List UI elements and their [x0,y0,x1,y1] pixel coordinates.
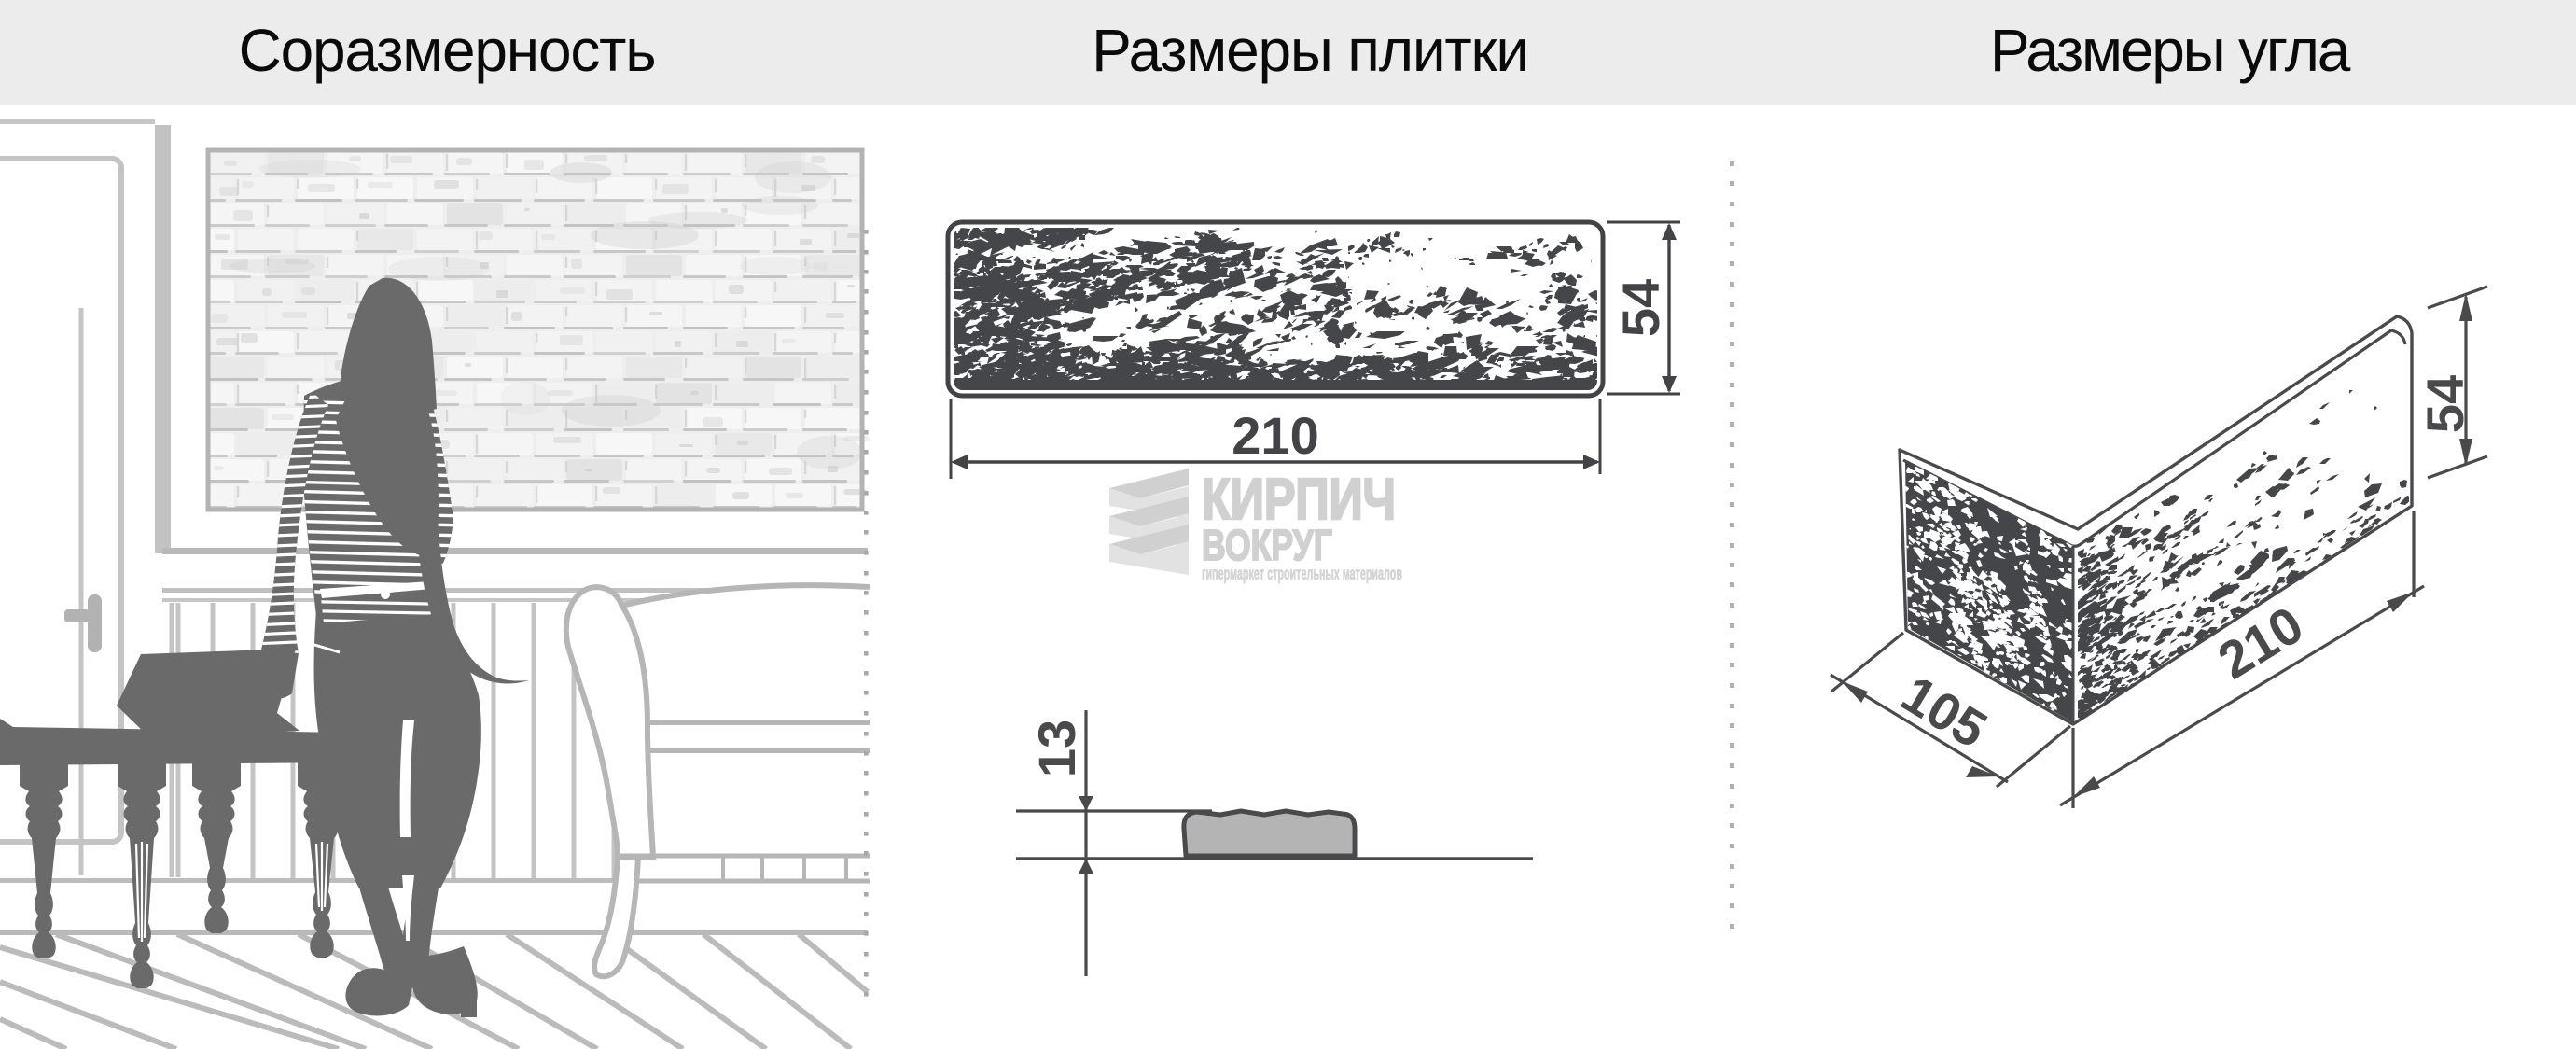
svg-text:ВОКРУГ: ВОКРУГ [1202,521,1332,569]
svg-text:13: 13 [1027,720,1086,777]
svg-text:гипермаркет строительных матер: гипермаркет строительных материалов [1202,565,1402,584]
svg-text:54: 54 [2416,375,2474,433]
svg-text:Соразмерность: Соразмерность [239,17,656,84]
svg-text:Размеры плитки: Размеры плитки [1092,17,1528,84]
svg-text:Размеры угла: Размеры угла [1990,17,2351,84]
svg-text:210: 210 [1232,406,1318,465]
svg-text:54: 54 [1611,279,1670,337]
